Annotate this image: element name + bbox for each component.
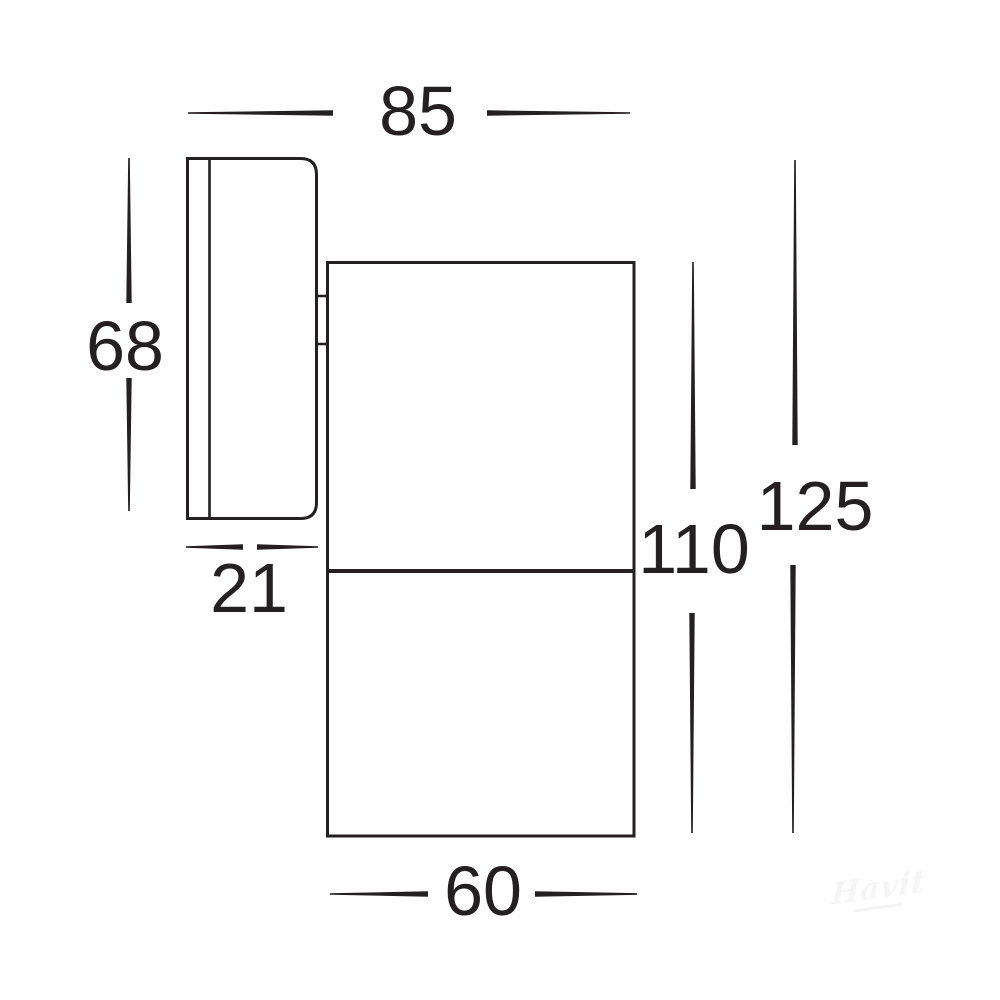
dim-110-leader-top [690,262,695,489]
brand-watermark: Havit [824,864,932,916]
dim-60-label: 60 [444,852,522,930]
dimension-overall-depth: 85 [188,72,630,150]
drawing-canvas: 85 68 21 110 125 60 [0,0,1000,1000]
dim-60-leader-right [535,891,637,896]
dim-85-leader-left [188,110,333,115]
dimension-body-diameter: 60 [330,852,637,930]
dim-68-leader-top [126,158,131,303]
dimension-body-height: 110 [638,262,750,833]
dim-125-label: 125 [757,467,874,545]
wall-plate-outline [188,159,317,519]
dim-110-leader-bottom [689,613,694,833]
dimension-plate-depth: 21 [186,544,318,627]
body-outline [328,263,635,837]
dim-125-leader-top [792,160,797,445]
dim-68-leader-bottom [126,378,131,511]
dim-21-label: 21 [210,549,288,627]
dim-68-label: 68 [86,307,164,385]
dim-85-leader-right [487,110,630,115]
dim-85-label: 85 [379,72,457,150]
dim-60-leader-left [330,891,428,896]
dimension-plate-height: 68 [86,158,164,511]
fixture-outline [188,159,635,837]
dimension-overall-height: 125 [757,160,874,833]
dim-125-leader-bottom [790,565,795,833]
dimension-diagram: 85 68 21 110 125 60 [0,0,1000,1000]
watermark-logo-text: Havit [829,864,927,913]
dim-110-label: 110 [638,510,750,588]
